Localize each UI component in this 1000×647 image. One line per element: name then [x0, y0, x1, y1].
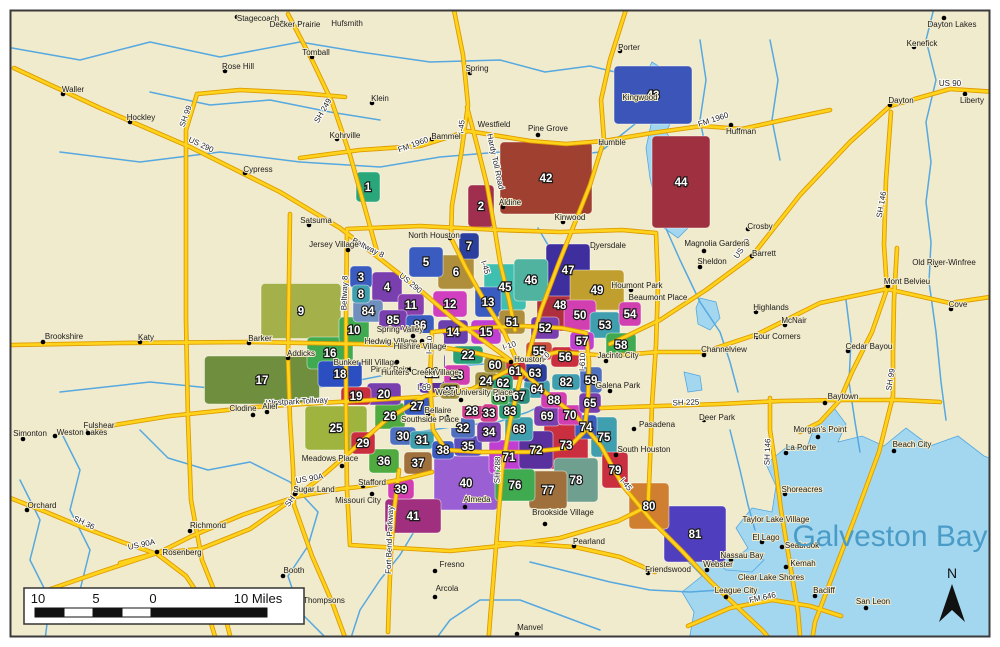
town-label-missouri-city: Missouri City [335, 496, 381, 505]
district-33-label: 33 [483, 408, 496, 420]
town-label-friendswood: Friendswood [645, 565, 691, 574]
highway-label-us-90-7: US 90 [939, 79, 962, 88]
district-48-label: 48 [554, 300, 567, 312]
district-76-label: 76 [509, 480, 522, 492]
town-label-addicks: Addicks [287, 349, 315, 358]
district-77-label: 77 [542, 485, 555, 497]
district-71-label: 71 [503, 452, 516, 464]
town-dot-beach-city [892, 449, 897, 454]
district-41-label: 41 [407, 511, 420, 523]
town-label-barker: Barker [248, 334, 272, 343]
town-label-old-river-winfree: Old River-Winfree [912, 258, 976, 267]
district-60-label: 60 [489, 360, 502, 372]
town-label-rose-hill: Rose Hill [222, 62, 254, 71]
town-label-arcola: Arcola [436, 584, 459, 593]
town-label-spring-valley: Spring Valley [377, 325, 424, 334]
town-label-cypress: Cypress [243, 165, 272, 174]
town-dot-seabrook [780, 545, 785, 550]
town-dot-piney-point [395, 360, 400, 365]
highway-label-sh-288-25: SH 288 [493, 456, 503, 484]
town-label-four-corners: Four Corners [753, 332, 800, 341]
town-dot-brookside-village [543, 522, 548, 527]
town-label-barrett: Barrett [752, 249, 777, 258]
town-label-nassau-bay: Nassau Bay [720, 551, 763, 560]
town-label-rosenberg: Rosenberg [162, 548, 201, 557]
district-42-label: 42 [540, 173, 553, 185]
scale-segment-1 [64, 608, 93, 617]
town-label-hufsmith: Hufsmith [331, 19, 363, 28]
town-dot-almeda [463, 505, 468, 510]
district-80-label: 80 [643, 501, 656, 513]
district-83-label: 83 [504, 406, 517, 418]
town-label-south-houston: South Houston [618, 445, 671, 454]
town-label-simonton: Simonton [13, 429, 47, 438]
district-36-label: 36 [378, 456, 391, 468]
town-label-katy: Katy [138, 333, 154, 342]
town-label-pearland: Pearland [573, 537, 605, 546]
district-9-label: 9 [298, 306, 304, 318]
map-layers: 1234567891011121314151617181920212223242… [0, 0, 1000, 647]
district-12-label: 12 [444, 299, 457, 311]
district-17-label: 17 [256, 375, 269, 387]
district-15-label: 15 [480, 327, 493, 339]
town-dot-rosenberg [155, 550, 160, 555]
district-69-label: 69 [541, 411, 554, 423]
district-25-label: 25 [330, 423, 343, 435]
district-52-label: 52 [539, 323, 552, 335]
town-label-cove: Cove [949, 300, 968, 309]
town-label-clodine: Clodine [229, 404, 257, 413]
district-78-label: 78 [570, 475, 583, 487]
town-label-liberty: Liberty [960, 96, 984, 105]
town-label-satsuma: Satsuma [300, 216, 332, 225]
district-81-label: 81 [689, 529, 702, 541]
district-79-label: 79 [609, 465, 622, 477]
district-28-label: 28 [466, 406, 479, 418]
district-34-label: 34 [483, 427, 496, 439]
town-dot-west-university-place [459, 398, 464, 403]
district-5-label: 5 [423, 257, 430, 269]
town-label-hilshire-village: Hilshire Village [394, 342, 447, 351]
highway-label-i-69-16: I-69 [417, 383, 431, 392]
town-dot-kemah [784, 565, 789, 570]
district-49-label: 49 [591, 285, 604, 297]
town-label-richmond: Richmond [190, 521, 226, 530]
district-82-label: 82 [560, 377, 573, 389]
district-30-label: 30 [397, 431, 410, 443]
town-dot-league-city [724, 595, 729, 600]
district-44-label: 44 [675, 177, 688, 189]
town-label-fulshear: Fulshear [83, 421, 114, 430]
town-label-houston: Houston [514, 355, 544, 364]
district-88-label: 88 [548, 395, 561, 407]
town-label-bellaire: Bellaire [425, 406, 452, 415]
town-label-klein: Klein [371, 94, 389, 103]
town-label-west-university-place: West University Place [435, 388, 513, 397]
town-label-highlands: Highlands [753, 303, 789, 312]
town-label-clear-lake-shores: Clear Lake Shores [738, 573, 804, 582]
town-label-dyersdale: Dyersdale [590, 241, 627, 250]
highway-label-sh-225-27: SH 225 [672, 398, 700, 408]
district-37-label: 37 [412, 458, 425, 470]
town-label-tomball: Tomball [302, 48, 330, 57]
town-label-channelview: Channelview [701, 345, 747, 354]
district-18-label: 18 [334, 369, 347, 381]
town-label-almeda: Almeda [463, 495, 491, 504]
scale-segment-2 [93, 608, 122, 617]
town-label-webster: Webster [703, 560, 733, 569]
town-label-jacinto-city: Jacinto City [597, 351, 638, 360]
town-label-orchard: Orchard [28, 501, 57, 510]
town-dot-meadows-place [340, 464, 345, 469]
town-label-brookshire: Brookshire [45, 332, 84, 341]
town-label-san-leon: San Leon [856, 597, 890, 606]
town-label-baytown: Baytown [828, 392, 859, 401]
district-74-label: 74 [580, 422, 593, 434]
town-label-humble: Humble [598, 138, 626, 147]
district-38-label: 38 [437, 445, 450, 457]
town-label-kinwood: Kinwood [555, 213, 586, 222]
town-label-beaumont-place: Beaumont Place [629, 293, 688, 302]
district-32-label: 32 [457, 423, 470, 435]
town-dot-pasadena [632, 427, 637, 432]
district-65-label: 65 [584, 398, 597, 410]
district-51-label: 51 [506, 317, 519, 329]
town-dot-san-leon [864, 606, 869, 611]
town-label-dayton-lakes: Dayton Lakes [928, 20, 977, 29]
scale-segment-3 [122, 608, 151, 617]
town-label-manvel: Manvel [517, 623, 543, 632]
town-label-alief: Alief [262, 402, 278, 411]
scale-segment-solid [151, 608, 267, 617]
district-39-label: 39 [395, 484, 408, 496]
town-label-beach-city: Beach City [893, 440, 932, 449]
scale-label-2: 0 [149, 591, 156, 606]
district-31-label: 31 [416, 435, 429, 447]
town-label-sheldon: Sheldon [697, 257, 726, 266]
town-label-westfield: Westfield [478, 120, 511, 129]
district-47-label: 47 [562, 265, 575, 277]
town-label-deer-park: Deer Park [699, 413, 736, 422]
district-29-label: 29 [357, 438, 370, 450]
district-73-label: 73 [560, 440, 573, 452]
district-45-label: 45 [499, 282, 512, 294]
town-label-aldine: Aldine [499, 198, 522, 207]
town-label-magnolia-gardens: Magnolia Gardens [684, 239, 749, 248]
town-label-kohrville: Kohrville [330, 131, 361, 140]
north-label: N [947, 565, 957, 581]
town-label-dayton: Dayton [888, 96, 913, 105]
town-dot-fresno [433, 569, 438, 574]
town-label-hunters-creek-village: Hunters Creek Village [381, 368, 459, 377]
district-68-label: 68 [513, 424, 526, 436]
town-label-la-porte: La Porte [786, 443, 817, 452]
district-57-label: 57 [576, 336, 589, 348]
town-label-porter: Porter [618, 43, 640, 52]
district-35-label: 35 [462, 441, 475, 453]
town-label-kingwood: Kingwood [622, 93, 657, 102]
scale-label-0: 10 [31, 591, 45, 606]
scale-label-1: 5 [92, 591, 99, 606]
district-54-label: 54 [624, 309, 637, 321]
town-dot-baytown [823, 401, 828, 406]
town-label-mcnair: McNair [781, 316, 807, 325]
district-3-label: 3 [358, 272, 364, 284]
town-dot-houston [509, 360, 514, 365]
district-75-label: 75 [598, 432, 611, 444]
district-8-label: 8 [358, 289, 365, 301]
district-6-label: 6 [453, 267, 459, 279]
scale-segment-0 [35, 608, 64, 617]
town-label-morgan-s-point: Morgan's Point [793, 425, 847, 434]
town-dot-pine-grove [536, 133, 541, 138]
town-label-el-lago: El Lago [752, 533, 780, 542]
district-63-label: 63 [529, 368, 542, 380]
town-label-spring: Spring [465, 64, 488, 73]
district-50-label: 50 [574, 310, 587, 322]
town-label-stafford: Stafford [358, 478, 386, 487]
district-11-label: 11 [405, 300, 418, 312]
district-26-label: 26 [384, 411, 397, 423]
district-24-label: 24 [480, 376, 493, 388]
town-label-brookside-village: Brookside Village [532, 508, 594, 517]
district-7-label: 7 [466, 241, 472, 253]
town-label-waller: Waller [62, 85, 85, 94]
town-dot-magnolia-gardens [702, 249, 707, 254]
district-4-label: 4 [384, 282, 391, 294]
district-19-label: 19 [350, 391, 363, 403]
town-label-cedar-bayou: Cedar Bayou [846, 342, 893, 351]
town-dot-clodine [251, 413, 256, 418]
town-label-thompsons: Thompsons [303, 596, 345, 605]
highway-label-beltway-8-11: Beltway 8 [339, 275, 349, 311]
district-13-label: 13 [482, 297, 495, 309]
town-label-bammel: Bammel [431, 132, 461, 141]
town-label-southside-place: Southside Place [401, 415, 459, 424]
district-84-label: 84 [362, 306, 375, 318]
town-label-meadows-place: Meadows Place [302, 454, 359, 463]
houston-super-neighborhoods-map: 1234567891011121314151617181920212223242… [0, 0, 1000, 647]
town-label-decker-prairie: Decker Prairie [270, 20, 321, 29]
district-70-label: 70 [564, 410, 577, 422]
district-53-label: 53 [599, 320, 612, 332]
district-61-label: 61 [509, 366, 522, 378]
bay-label: Galveston Bay [792, 520, 987, 553]
scale-bar: 105010 Miles [24, 588, 304, 624]
town-dot-morgan-s-point [816, 435, 821, 440]
town-label-galena-park: Galena Park [596, 381, 641, 390]
district-46-label: 46 [525, 275, 538, 287]
town-label-mont-belvieu: Mont Belvieu [884, 277, 930, 286]
district-64-label: 64 [531, 384, 544, 396]
town-label-sugar-land: Sugar Land [293, 485, 334, 494]
town-label-north-houston: North Houston [408, 231, 460, 240]
town-label-jersey-village: Jersey Village [309, 240, 359, 249]
map-canvas: 1234567891011121314151617181920212223242… [0, 0, 1000, 647]
town-label-houmont-park: Houmont Park [611, 281, 663, 290]
town-dot-fulshear [86, 431, 91, 436]
scale-label-3: 10 Miles [234, 591, 283, 606]
district-22-label: 22 [462, 350, 475, 362]
highway-label-i-610-18: I-610 [578, 352, 588, 371]
district-2-label: 2 [478, 201, 484, 213]
district-14-label: 14 [447, 327, 460, 339]
district-20-label: 20 [378, 389, 391, 401]
highway-label-sh-146-28: SH 146 [763, 438, 773, 466]
district-72-label: 72 [530, 445, 543, 457]
district-27-label: 27 [411, 401, 424, 413]
town-label-bacliff: Bacliff [813, 586, 835, 595]
district-40-label: 40 [460, 478, 473, 490]
town-label-booth: Booth [284, 566, 305, 575]
town-label-crosby: Crosby [747, 222, 772, 231]
town-label-pasadena: Pasadena [639, 420, 676, 429]
town-label-kenefick: Kenefick [907, 39, 939, 48]
town-label-huffman: Huffman [726, 127, 756, 136]
district-67-label: 67 [513, 391, 526, 403]
town-dot-arcola [433, 595, 438, 600]
district-10-label: 10 [348, 325, 361, 337]
town-label-fresno: Fresno [440, 560, 465, 569]
district-1-label: 1 [365, 182, 372, 194]
town-label-kemah: Kemah [790, 559, 815, 568]
town-label-hockley: Hockley [127, 113, 155, 122]
town-label-shoreacres: Shoreacres [782, 485, 823, 494]
town-label-pine-grove: Pine Grove [528, 124, 569, 133]
district-56-label: 56 [559, 352, 572, 364]
town-label-league-city: League City [715, 586, 758, 595]
